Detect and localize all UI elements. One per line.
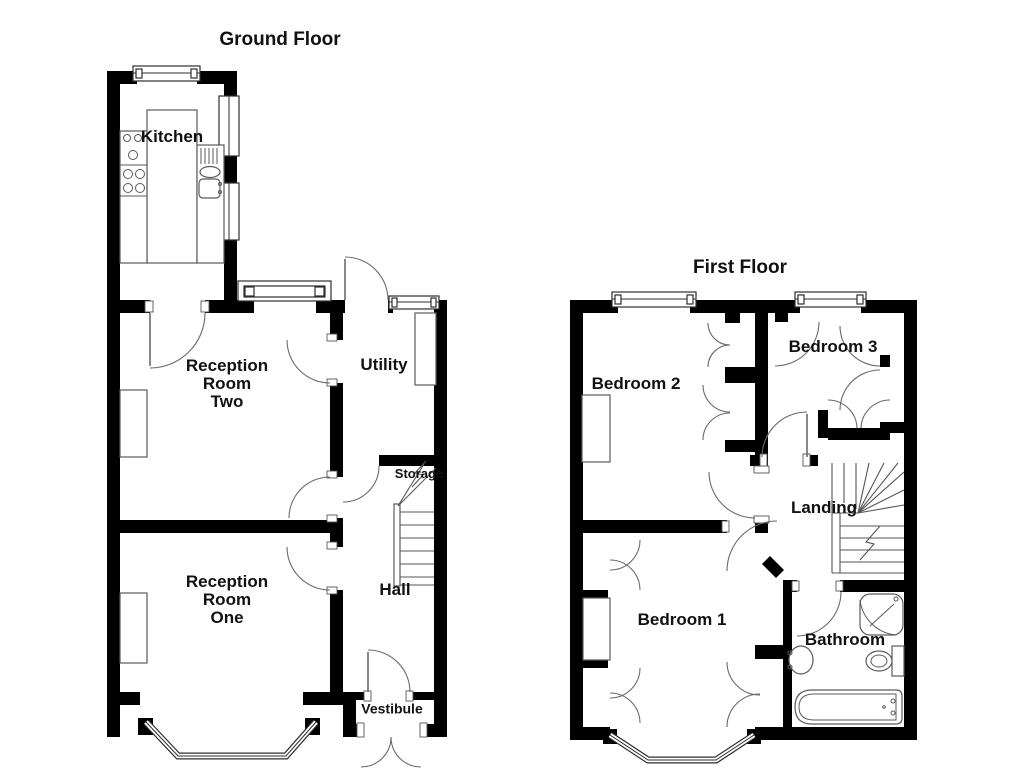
bedroom3-door (762, 412, 807, 457)
room-label-kitchen: Kitchen (141, 128, 203, 146)
bedroom2-wardrobe-doors (708, 323, 730, 345)
shower-icon (860, 594, 903, 635)
first-floor-title: First Floor (693, 258, 787, 278)
ground-floor-title: Ground Floor (219, 30, 340, 50)
bedroom2-window-icon (612, 292, 696, 307)
bathtub-icon (795, 690, 902, 724)
front-door-right-leaf (391, 737, 421, 767)
room-label-reception-two: Reception Room Two (186, 357, 268, 411)
bedroom2-door (709, 472, 755, 518)
bedroom3-cupboard-doors (828, 400, 857, 428)
toilet-icon (866, 646, 904, 676)
room-label-bedroom-3: Bedroom 3 (789, 338, 878, 356)
floorplan-drawing (0, 0, 1024, 768)
room-label-hall: Hall (379, 581, 410, 599)
bedroom3-window-icon (795, 292, 866, 307)
room-label-bathroom: Bathroom (805, 631, 885, 649)
room-label-bedroom-1: Bedroom 1 (638, 611, 727, 629)
ground-floor-doors (145, 257, 427, 767)
first-floor-plan (570, 292, 917, 760)
first-bay-window-icon (610, 735, 754, 760)
room-label-reception-one: Reception Room One (186, 573, 268, 627)
front-door-left-leaf (361, 737, 391, 767)
room-label-storage: Storage (395, 467, 443, 481)
kitchen-window-icon (133, 66, 200, 81)
room-label-utility: Utility (360, 356, 407, 374)
first-floor-walls (570, 300, 917, 744)
bedroom1-wardrobe-doors (610, 540, 640, 570)
room-label-vestibule: Vestibule (361, 702, 422, 717)
bedroom1-closet-doors (727, 662, 760, 695)
utility-window-icon (389, 296, 439, 309)
first-stairs-icon (832, 463, 904, 573)
ground-floor-plan (107, 66, 447, 767)
utility-worktop (415, 313, 436, 385)
floorplan-page: Ground Floor Kitchen Reception Room Two … (0, 0, 1024, 768)
wash-basin-icon (788, 646, 813, 674)
room-label-landing: Landing (791, 499, 857, 517)
ground-bay-window-icon (146, 722, 316, 756)
room-label-bedroom-2: Bedroom 2 (592, 375, 681, 393)
reception-two-rear-window-icon (238, 281, 331, 301)
